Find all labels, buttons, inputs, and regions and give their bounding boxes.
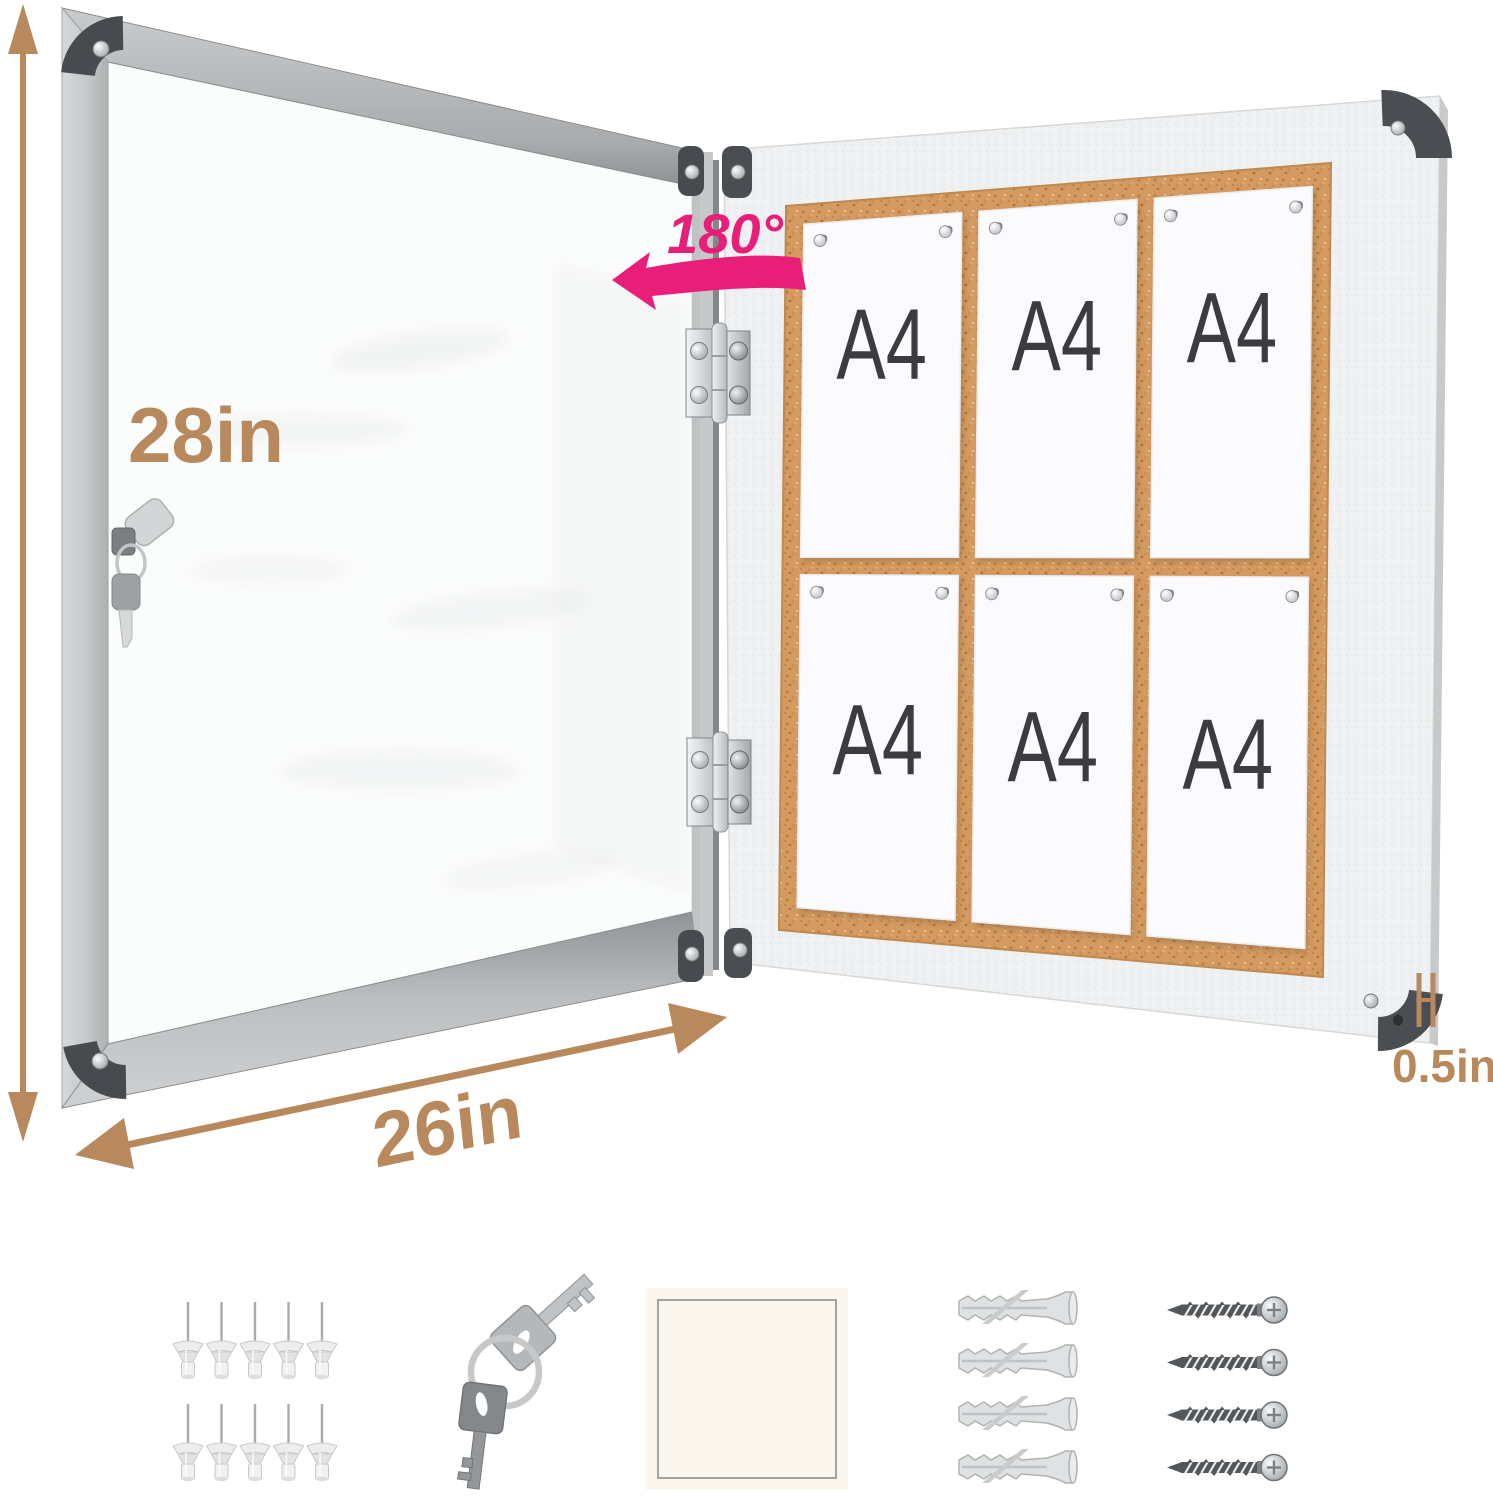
arrowhead-right-icon — [668, 1003, 727, 1054]
screw-icon — [1167, 1297, 1287, 1323]
corner-screw-icon — [731, 165, 745, 179]
paper-label: A4 — [1183, 697, 1274, 810]
push-pin-icon — [207, 1302, 237, 1379]
paper-label: A4 — [836, 287, 927, 400]
push-pin-icon — [1161, 589, 1174, 601]
screw-icon — [1167, 1402, 1287, 1428]
wall-anchor-icon — [959, 1396, 1077, 1430]
push-pin-icon — [811, 586, 824, 598]
depth-label: 0.5in — [1392, 1040, 1493, 1092]
push-pin-icon — [274, 1302, 304, 1379]
wall-anchors — [959, 1290, 1077, 1483]
arrowhead-down-icon — [8, 1092, 38, 1142]
push-pin-icon — [814, 235, 827, 247]
mount-hole-icon — [1393, 1015, 1403, 1026]
rotation-label: 180° — [667, 202, 783, 265]
paper-label: A4 — [1187, 271, 1278, 384]
push-pins — [173, 1302, 337, 1481]
push-pin-icon — [274, 1404, 304, 1481]
accessories — [173, 1261, 1287, 1491]
glass-door — [62, 8, 719, 1108]
blank-card-icon — [646, 1288, 848, 1490]
push-pin-icon — [240, 1404, 270, 1481]
push-pin-icon — [1115, 213, 1128, 225]
paper-label: A4 — [1012, 279, 1103, 392]
push-pin-icon — [307, 1302, 337, 1379]
height-label: 28in — [128, 391, 284, 479]
product-illustration: A4A4A4A4A4A4 — [0, 0, 1493, 1500]
corner-screw-icon — [92, 1053, 108, 1069]
push-pin-icon — [307, 1404, 337, 1481]
key-icon — [451, 1382, 508, 1491]
push-pin-icon — [1164, 210, 1177, 222]
screw-icon — [1167, 1455, 1287, 1481]
paper-label: A4 — [833, 683, 924, 796]
push-pin-icon — [1286, 591, 1299, 603]
corner-screw-icon — [733, 943, 747, 957]
arrowhead-up-icon — [8, 4, 38, 54]
push-pin-icon — [986, 588, 999, 600]
arrowhead-left-icon — [75, 1118, 134, 1169]
keys-icon — [451, 1261, 604, 1491]
push-pin-icon — [173, 1302, 203, 1379]
corner-screw-icon — [1364, 994, 1378, 1008]
bulletin-board: A4A4A4A4A4A4 — [722, 96, 1448, 1046]
hinge-icon — [687, 732, 751, 832]
paper-label: A4 — [1008, 690, 1099, 803]
key-icon — [488, 1261, 605, 1373]
door-frame-left — [62, 8, 108, 1108]
corner-screw-icon — [685, 947, 699, 961]
wall-anchor-icon — [959, 1290, 1077, 1324]
screws — [1167, 1297, 1287, 1481]
screw-icon — [1167, 1350, 1287, 1376]
wall-anchor-icon — [959, 1343, 1077, 1377]
push-pin-icon — [939, 226, 952, 238]
push-pin-icon — [240, 1302, 270, 1379]
hinge-icon — [686, 323, 750, 423]
push-pin-icon — [936, 587, 949, 599]
push-pin-icon — [989, 222, 1002, 234]
push-pin-icon — [207, 1404, 237, 1481]
push-pin-icon — [173, 1404, 203, 1481]
corner-screw-icon — [93, 41, 109, 57]
push-pin-icon — [1290, 201, 1303, 213]
corner-screw-icon — [685, 165, 699, 179]
push-pin-icon — [1111, 589, 1124, 601]
corner-screw-icon — [1391, 121, 1405, 135]
wall-anchor-icon — [959, 1449, 1077, 1483]
